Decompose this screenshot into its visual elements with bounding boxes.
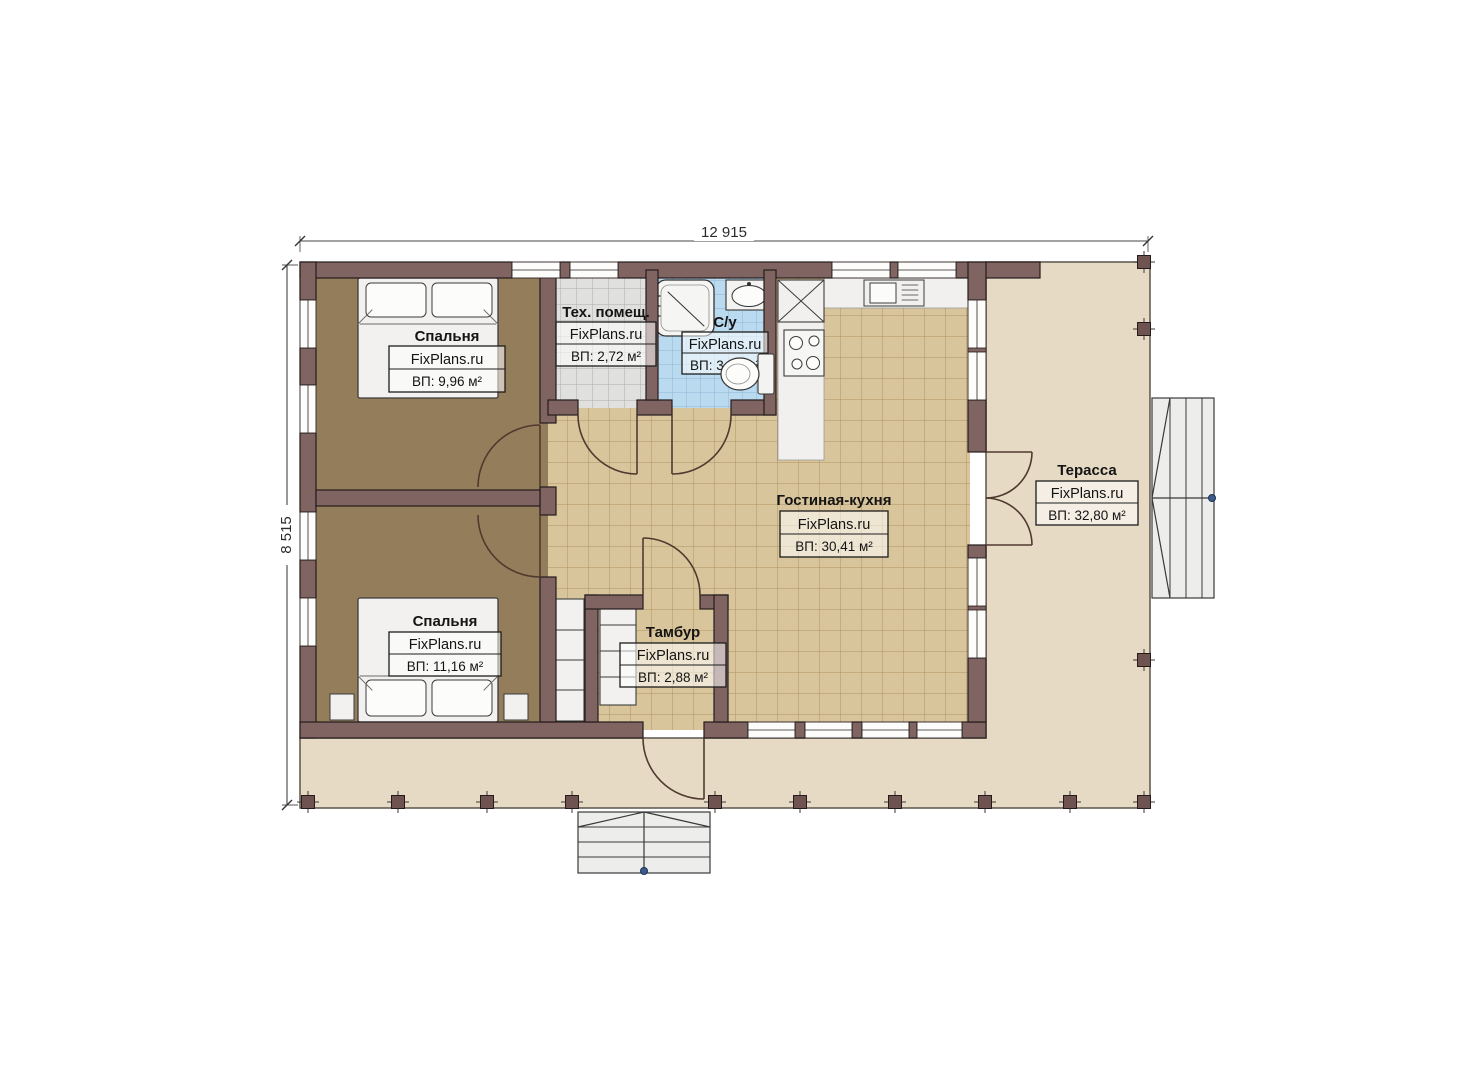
stairs-bottom: [578, 812, 710, 875]
room-name: Тамбур: [646, 624, 700, 641]
window: [968, 558, 986, 658]
window: [968, 300, 986, 400]
room-area: ВП: 30,41 м²: [795, 539, 873, 554]
window: [917, 722, 962, 738]
dimension-height-value: 8 515: [278, 516, 295, 554]
window: [862, 722, 909, 738]
window: [300, 598, 316, 646]
window: [300, 385, 316, 433]
room-watermark: FixPlans.ru: [411, 352, 484, 368]
room-name: Гостиная-кухня: [777, 492, 892, 509]
room-label-living: Гостиная-кухня FixPlans.ru ВП: 30,41 м²: [777, 492, 892, 557]
room-name: Терасса: [1057, 462, 1117, 479]
nightstand: [504, 694, 528, 720]
pillow: [366, 680, 426, 716]
room-name: Тех. помещ.: [562, 304, 650, 321]
window: [512, 262, 560, 278]
shower-cabin: [652, 280, 714, 336]
pillow: [432, 680, 492, 716]
window: [300, 512, 316, 560]
kitchen-sink-unit: [864, 280, 924, 306]
room-name: С/у: [713, 314, 737, 331]
room-name: Спальня: [415, 328, 480, 345]
room-area: ВП: 2,88 м²: [638, 670, 709, 685]
room-watermark: FixPlans.ru: [570, 327, 643, 343]
pillow: [432, 283, 492, 317]
window: [570, 262, 618, 278]
room-area: ВП: 9,96 м²: [412, 374, 483, 389]
room-area: ВП: 2,72 м²: [571, 349, 642, 364]
floor-plan: Спальня FixPlans.ru ВП: 9,96 м² Тех. пом…: [0, 0, 1473, 1080]
room-area: ВП: 32,80 м²: [1048, 508, 1126, 523]
room-watermark: FixPlans.ru: [409, 637, 482, 653]
dimension-width-value: 12 915: [701, 224, 747, 241]
window: [898, 262, 956, 278]
dimension-height: 8 515: [278, 260, 298, 810]
stair-direction-dot: [641, 868, 648, 875]
stairs-right: [1152, 398, 1216, 598]
room-area: ВП: 11,16 м²: [407, 659, 484, 674]
room-watermark: FixPlans.ru: [689, 337, 762, 353]
window: [748, 722, 795, 738]
pillow: [366, 283, 426, 317]
room-watermark: FixPlans.ru: [1051, 486, 1124, 502]
window: [300, 300, 316, 348]
dimension-width: 12 915: [295, 224, 1153, 252]
room-watermark: FixPlans.ru: [637, 648, 710, 664]
room-label-tech: Тех. помещ. FixPlans.ru ВП: 2,72 м²: [556, 304, 656, 366]
kitchen-cabinet-icon: [778, 280, 824, 322]
stove: [784, 330, 824, 376]
room-watermark: FixPlans.ru: [798, 517, 871, 533]
floor-plan-page: Спальня FixPlans.ru ВП: 9,96 м² Тех. пом…: [0, 0, 1473, 1080]
window: [832, 262, 890, 278]
room-name: Спальня: [413, 613, 478, 630]
window: [805, 722, 852, 738]
nightstand: [330, 694, 354, 720]
stair-direction-dot: [1209, 495, 1216, 502]
